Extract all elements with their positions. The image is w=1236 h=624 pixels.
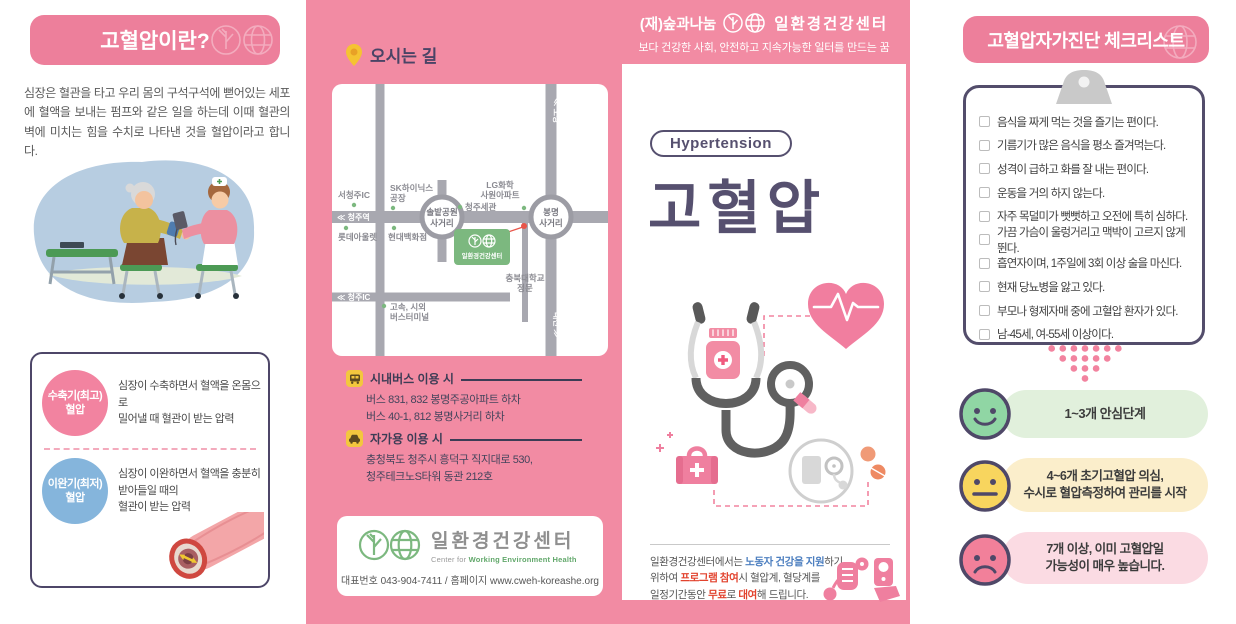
divider-line <box>650 544 890 545</box>
map-label-lotte-outlet: 롯데아울렛 <box>338 232 377 242</box>
systolic-description: 심장이 수축하면서 혈액을 온몸으로 밀어낼 때 혈관이 받는 압력 <box>118 378 264 428</box>
diastolic-description: 심장이 이완하면서 혈액을 충분히 받아들일 때의 혈관이 받는 압력 <box>118 466 260 516</box>
bus-info: 버스 831, 832 봉명주공아파트 하차 버스 40-1, 812 봉명사거… <box>366 392 521 425</box>
checkbox <box>979 258 990 269</box>
foundation-name: (재)숲과나눔 <box>640 13 716 34</box>
map-label-center: 일환경건강센터 <box>462 251 503 260</box>
checklist-item: 기름기가 많은 음식을 평소 즐겨먹는다. <box>979 134 1196 158</box>
dashed-divider <box>44 448 256 450</box>
blood-pressure-types-box: 수축기(최고) 혈압 심장이 수축하면서 혈액을 온몸으로 밀어낼 때 혈관이 … <box>30 352 270 588</box>
happy-face-icon <box>957 386 1013 442</box>
center-name: 일환경건강센터 <box>774 12 888 34</box>
rental-note: 일환경건강센터에서는 노동자 건강을 지원하기 위하여 프로그램 참여시 혈압계… <box>650 554 850 603</box>
checkbox <box>979 234 990 245</box>
result-safe: 1~3개 안심단계 <box>1002 390 1208 438</box>
clipboard-clip-icon <box>1046 70 1122 104</box>
map-label-bongmyeong: 봉명 <box>543 207 559 217</box>
organization-logo-card: 일환경건강센터 Center for Working Environment H… <box>337 516 603 596</box>
systolic-row: 수축기(최고) 혈압 심장이 수축하면서 혈액을 온몸으로 밀어낼 때 혈관이 … <box>42 370 264 436</box>
map-label-cheongju-ic: ≪ 청주IC <box>337 292 371 302</box>
medical-illustration <box>632 264 896 536</box>
checklist-item: 성격이 급하고 화를 잘 내는 편이다. <box>979 157 1196 181</box>
bus-icon <box>346 370 363 387</box>
contact-info: 대표번호 043-904-7411 / 홈페이지 www.cweh-koreas… <box>337 572 603 587</box>
checklist-item: 남-45세, 여-55세 이상이다. <box>979 322 1196 346</box>
pill-icon <box>861 447 876 462</box>
directions-title-row: 오시는 길 <box>346 42 437 67</box>
checklist-item: 가끔 가슴이 울렁거리고 맥박이 고르지 않게 뛴다. <box>979 228 1196 252</box>
map-label-university-2: 정문 <box>517 283 533 293</box>
map-label-lg-chem-2: 사원아파트 <box>480 190 519 200</box>
cover-org-header: (재)숲과나눔 일환경건강센터 보다 건강한 사회, 안전하고 지속가능한 일터… <box>610 12 918 55</box>
tree-globe-header-icon <box>722 12 768 34</box>
diastolic-circle: 이완기(최저) 혈압 <box>42 458 108 524</box>
tree-globe-watermark-icon <box>210 21 274 59</box>
blood-pressure-check-illustration <box>16 146 272 320</box>
bp-monitor-icon <box>790 440 852 502</box>
map-label-solbat-park-2: 사거리 <box>430 218 453 228</box>
map-label-sk-hynix: SK하이닉스 <box>390 183 433 193</box>
result-danger: 7개 이상, 이미 고혈압일 가능성이 매우 높습니다. <box>1002 532 1208 584</box>
brochure-page: 고혈압이란? 심장은 혈관을 타고 우리 몸의 구석구석에 뻗어있는 세포에 혈… <box>0 0 1236 624</box>
map-label-daejeon: 대전 ≫ <box>552 312 562 337</box>
bp-and-glucose-meter-icons <box>822 556 902 604</box>
checklist-header-pill: 고혈압자가진단 체크리스트 <box>963 16 1209 63</box>
cover-title: 고혈압 <box>648 161 826 245</box>
rule-line <box>461 379 582 381</box>
location-map: ≪ 청주역 ≪ 청주IC ≪ 오창 대전 ≫ 솔밭공원 사거리 봉명 사거리 서… <box>332 84 608 356</box>
car-icon <box>346 430 363 447</box>
car-title: 자가용 이용 시 <box>370 430 443 447</box>
map-pin-icon <box>346 44 362 66</box>
logo-org-name: 일환경건강센터 <box>431 526 577 553</box>
heart-icon <box>808 283 884 349</box>
checkbox <box>979 281 990 292</box>
cover-card: Hypertension 고혈압 <box>622 64 906 600</box>
map-label-ochang: ≪ 오창 <box>552 98 562 124</box>
logo-org-subtitle: Center for Working Environment Health <box>431 555 577 564</box>
checklist-item: 음식을 짜게 먹는 것을 즐기는 편이다. <box>979 110 1196 134</box>
bus-title: 시내버스 이용 시 <box>370 370 454 387</box>
tree-globe-logo-icon <box>357 527 423 563</box>
left-title: 고혈압이란? <box>100 25 209 55</box>
map-label-cheongju-station: ≪ 청주역 <box>337 212 370 222</box>
car-info: 충청북도 청주시 흥덕구 직지대로 530, 청주테크노S타워 동관 212호 <box>366 452 533 485</box>
checkbox <box>979 116 990 127</box>
result-warning: 4~6개 초기고혈압 의심, 수시로 혈압측정하여 관리를 시작 <box>1002 458 1208 512</box>
neutral-face-icon <box>957 458 1013 514</box>
hypertension-badge: Hypertension <box>650 130 792 157</box>
tagline: 보다 건강한 사회, 안전하고 지속가능한 일터를 만드는 꿈 <box>610 39 918 55</box>
car-section-header: 자가용 이용 시 <box>346 430 582 447</box>
map-card: ≪ 청주역 ≪ 청주IC ≪ 오창 대전 ≫ 솔밭공원 사거리 봉명 사거리 서… <box>332 84 608 356</box>
map-label-university: 충북대학교 <box>505 273 544 283</box>
globe-watermark-icon <box>1157 22 1203 62</box>
directions-title: 오시는 길 <box>370 42 437 67</box>
checklist-box: 음식을 짜게 먹는 것을 즐기는 편이다. 기름기가 많은 음식을 평소 즐겨먹… <box>963 85 1205 345</box>
checklist-title: 고혈압자가진단 체크리스트 <box>987 27 1184 53</box>
left-header-pill: 고혈압이란? <box>30 15 280 65</box>
systolic-circle: 수축기(최고) 혈압 <box>42 370 108 436</box>
checkbox <box>979 211 990 222</box>
map-label-bongmyeong-2: 사거리 <box>539 218 562 228</box>
sparkle-icon <box>656 432 673 452</box>
checklist-item: 현재 당뇨병을 앓고 있다. <box>979 275 1196 299</box>
medicine-bottle-icon <box>706 328 740 379</box>
checklist-item: 운동을 거의 하지 않는다. <box>979 181 1196 205</box>
checkbox <box>979 140 990 151</box>
map-label-solbat-park: 솔밭공원 <box>426 207 457 217</box>
sad-face-icon <box>957 532 1013 588</box>
bus-section-header: 시내버스 이용 시 <box>346 370 582 387</box>
map-label-sk-hynix-2: 공장 <box>390 193 406 203</box>
map-label-bus-terminal: 고속, 시외 <box>390 302 426 312</box>
map-label-lg-chem: LG화학 <box>486 180 514 190</box>
checkbox <box>979 163 990 174</box>
map-label-seocheongju-ic: 서청주IC <box>338 190 370 200</box>
map-label-hyundai-dept: 현대백화점 <box>388 232 427 242</box>
rule-line <box>450 439 582 441</box>
checkbox <box>979 305 990 316</box>
checklist-item: 부모나 형제자매 중에 고혈압 환자가 있다. <box>979 299 1196 323</box>
checkbox <box>979 329 990 340</box>
map-label-customs: 청주세관 <box>465 202 496 212</box>
dots-arrow-icon <box>1042 344 1128 384</box>
map-label-bus-terminal-2: 버스터미널 <box>390 312 429 322</box>
first-aid-bag-icon <box>676 449 718 485</box>
checkbox <box>979 187 990 198</box>
checklist-item: 흡연자이며, 1주일에 3회 이상 술을 마신다. <box>979 252 1196 276</box>
artery-illustration <box>152 512 264 582</box>
